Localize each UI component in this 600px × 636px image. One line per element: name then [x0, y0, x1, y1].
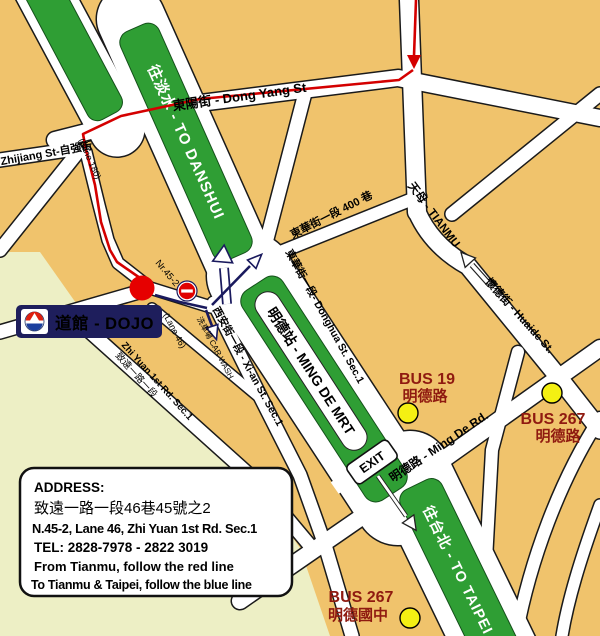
bus-stop-marker-267-mingde-rd — [542, 383, 562, 403]
bus-267-stop-label: 明德路 — [535, 427, 581, 445]
bus-stop-marker-267-school — [400, 608, 420, 628]
blue-line-instruction: To Tianmu & Taipei, follow the blue line — [31, 578, 252, 592]
dojo-label-box: 道館 - DOJO — [16, 305, 162, 338]
address-box: ADDRESS: 致遠一路一段46巷45號之2 N.45-2, Lane 46,… — [20, 468, 292, 596]
map-canvas: 往淡水 - TO DANSHUI 明德站 - MING DE MRT 往台北 -… — [0, 0, 600, 636]
bus-19-line-label: BUS 19 — [399, 371, 455, 388]
address-heading: ADDRESS: — [34, 480, 105, 495]
bus-19-stop-label: 明德路 — [402, 387, 448, 405]
dojo-direction-map: 往淡水 - TO DANSHUI 明德站 - MING DE MRT 往台北 -… — [0, 0, 600, 636]
address-tel: TEL: 2828-7978 - 2822 3019 — [34, 540, 208, 555]
dojo-logo-icon — [25, 312, 44, 331]
dojo-location-marker — [130, 276, 155, 301]
bus-267-school-line-label: BUS 267 — [329, 589, 394, 606]
bus-stop-marker-19 — [398, 403, 418, 423]
dojo-label: 道館 - DOJO — [55, 313, 154, 333]
address-line-cn: 致遠一路一段46巷45號之2 — [34, 500, 211, 517]
bus-267-school-stop-label: 明德國中 — [328, 606, 388, 624]
red-line-instruction: From Tianmu, follow the red line — [34, 559, 234, 574]
no-entry-sign — [177, 281, 197, 301]
bus-267-line-label: BUS 267 — [521, 411, 586, 428]
address-line-en: N.45-2, Lane 46, Zhi Yuan 1st Rd. Sec.1 — [32, 521, 257, 536]
